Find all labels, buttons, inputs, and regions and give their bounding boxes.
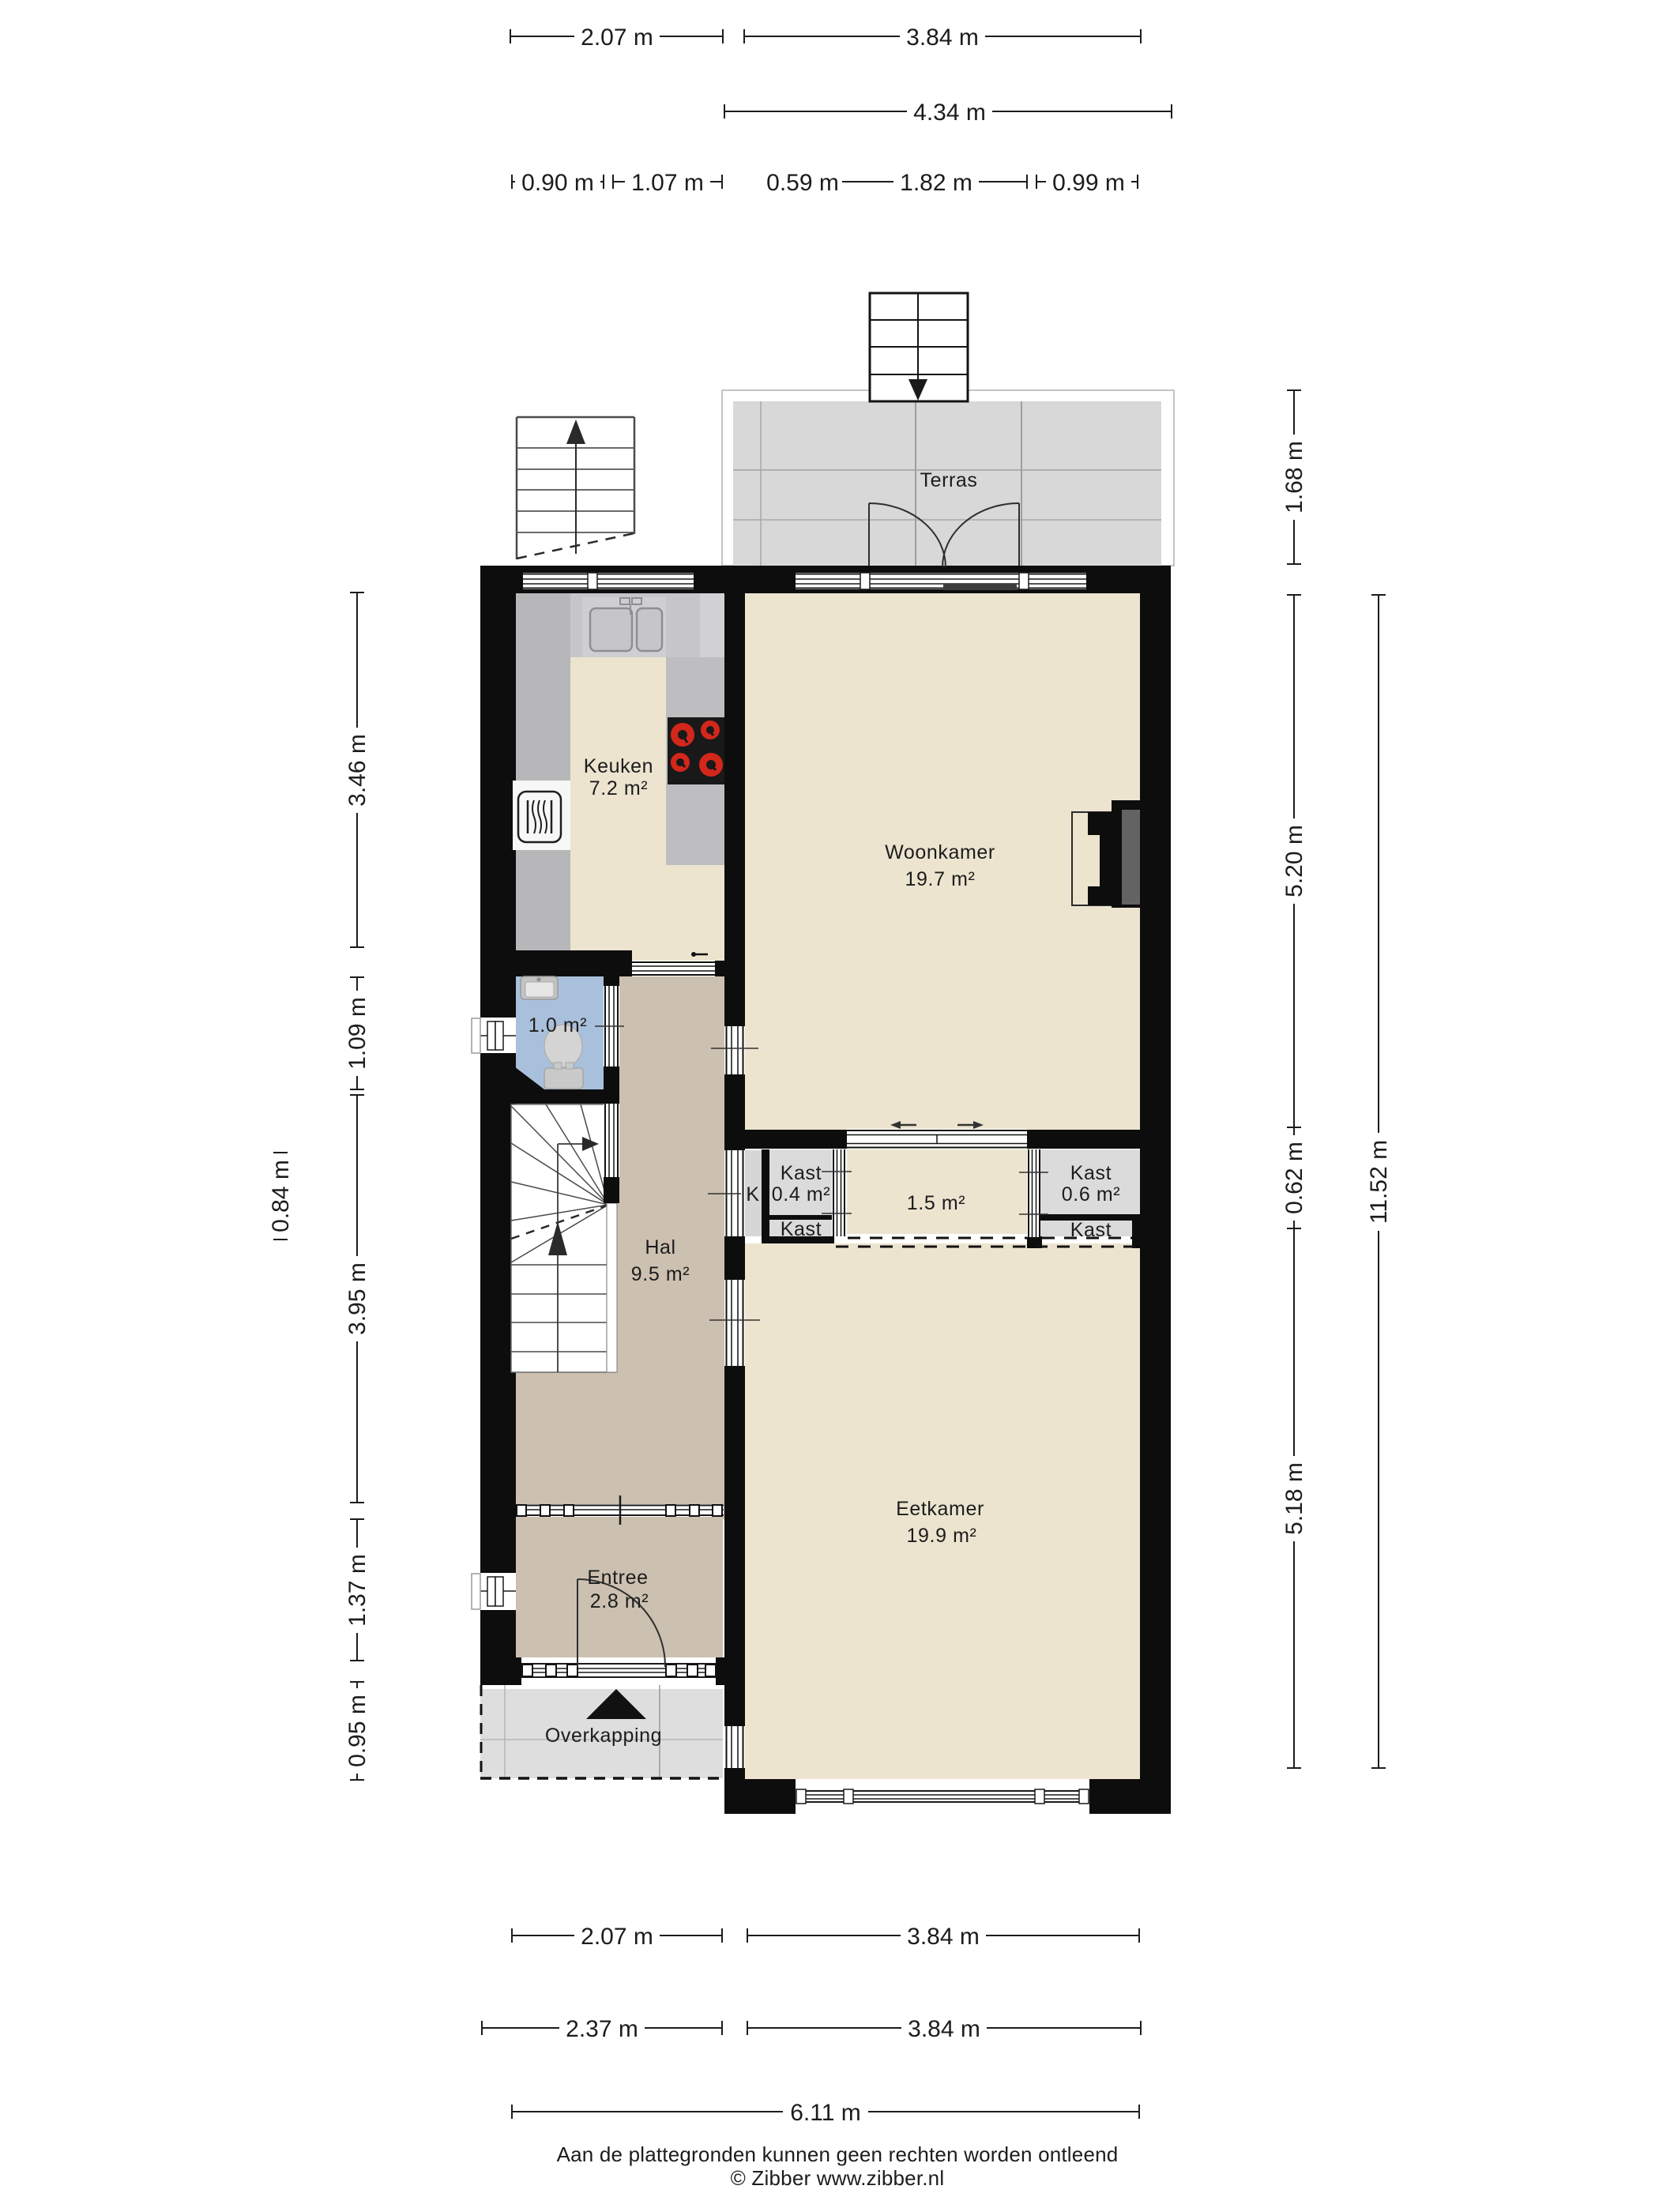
svg-text:3.84 m: 3.84 m xyxy=(906,24,979,51)
svg-text:1.0 m²: 1.0 m² xyxy=(529,1014,587,1036)
svg-text:Kast: Kast xyxy=(781,1162,822,1184)
svg-text:Overkapping: Overkapping xyxy=(545,1725,662,1747)
svg-text:1.82 m: 1.82 m xyxy=(900,170,972,196)
svg-text:4.34 m: 4.34 m xyxy=(913,100,986,126)
svg-text:0.59 m: 0.59 m xyxy=(766,170,839,196)
svg-text:1.09 m: 1.09 m xyxy=(344,997,371,1070)
svg-text:9.5 m²: 9.5 m² xyxy=(631,1263,690,1285)
svg-text:0.4 m²: 0.4 m² xyxy=(772,1183,830,1206)
svg-text:19.9 m²: 19.9 m² xyxy=(907,1525,977,1547)
svg-text:Kast: Kast xyxy=(781,1218,822,1240)
svg-text:5.18 m: 5.18 m xyxy=(1281,1462,1307,1535)
svg-text:11.52 m: 11.52 m xyxy=(1366,1140,1392,1224)
svg-text:Entree: Entree xyxy=(587,1567,648,1589)
svg-text:2.37 m: 2.37 m xyxy=(566,2016,638,2042)
svg-text:1.07 m: 1.07 m xyxy=(631,170,704,196)
svg-text:0.84 m: 0.84 m xyxy=(268,1160,294,1232)
svg-text:© Zibber www.zibber.nl: © Zibber www.zibber.nl xyxy=(731,2166,945,2190)
svg-text:Kast: Kast xyxy=(1070,1219,1112,1241)
svg-text:0.90 m: 0.90 m xyxy=(521,170,594,196)
svg-text:1.37 m: 1.37 m xyxy=(344,1554,371,1627)
svg-text:3.46 m: 3.46 m xyxy=(344,734,371,807)
svg-text:3.84 m: 3.84 m xyxy=(908,2016,980,2042)
svg-text:7.2 m²: 7.2 m² xyxy=(589,777,648,799)
svg-text:0.99 m: 0.99 m xyxy=(1052,170,1125,196)
svg-text:Terras: Terras xyxy=(920,469,977,491)
svg-text:3.84 m: 3.84 m xyxy=(907,1924,980,1950)
svg-text:Kast: Kast xyxy=(1070,1162,1112,1184)
svg-text:Woonkamer: Woonkamer xyxy=(885,841,995,863)
svg-text:0.62 m: 0.62 m xyxy=(1281,1142,1307,1214)
svg-text:2.8 m²: 2.8 m² xyxy=(590,1590,649,1612)
svg-text:3.95 m: 3.95 m xyxy=(344,1262,371,1335)
svg-text:0.95 m: 0.95 m xyxy=(344,1695,371,1767)
svg-text:Keuken: Keuken xyxy=(584,755,653,777)
svg-text:K: K xyxy=(746,1183,759,1206)
svg-text:1.68 m: 1.68 m xyxy=(1281,441,1307,513)
svg-text:2.07 m: 2.07 m xyxy=(581,1924,653,1950)
svg-text:Aan de plattegronden kunnen ge: Aan de plattegronden kunnen geen rechten… xyxy=(557,2142,1119,2166)
svg-text:Eetkamer: Eetkamer xyxy=(896,1498,984,1520)
svg-text:Hal: Hal xyxy=(645,1236,675,1258)
svg-text:19.7 m²: 19.7 m² xyxy=(905,868,976,890)
svg-text:2.07 m: 2.07 m xyxy=(581,24,653,51)
svg-text:6.11 m: 6.11 m xyxy=(790,2100,861,2126)
svg-text:0.6 m²: 0.6 m² xyxy=(1062,1183,1120,1206)
svg-text:5.20 m: 5.20 m xyxy=(1281,825,1307,897)
svg-text:1.5 m²: 1.5 m² xyxy=(907,1192,965,1214)
